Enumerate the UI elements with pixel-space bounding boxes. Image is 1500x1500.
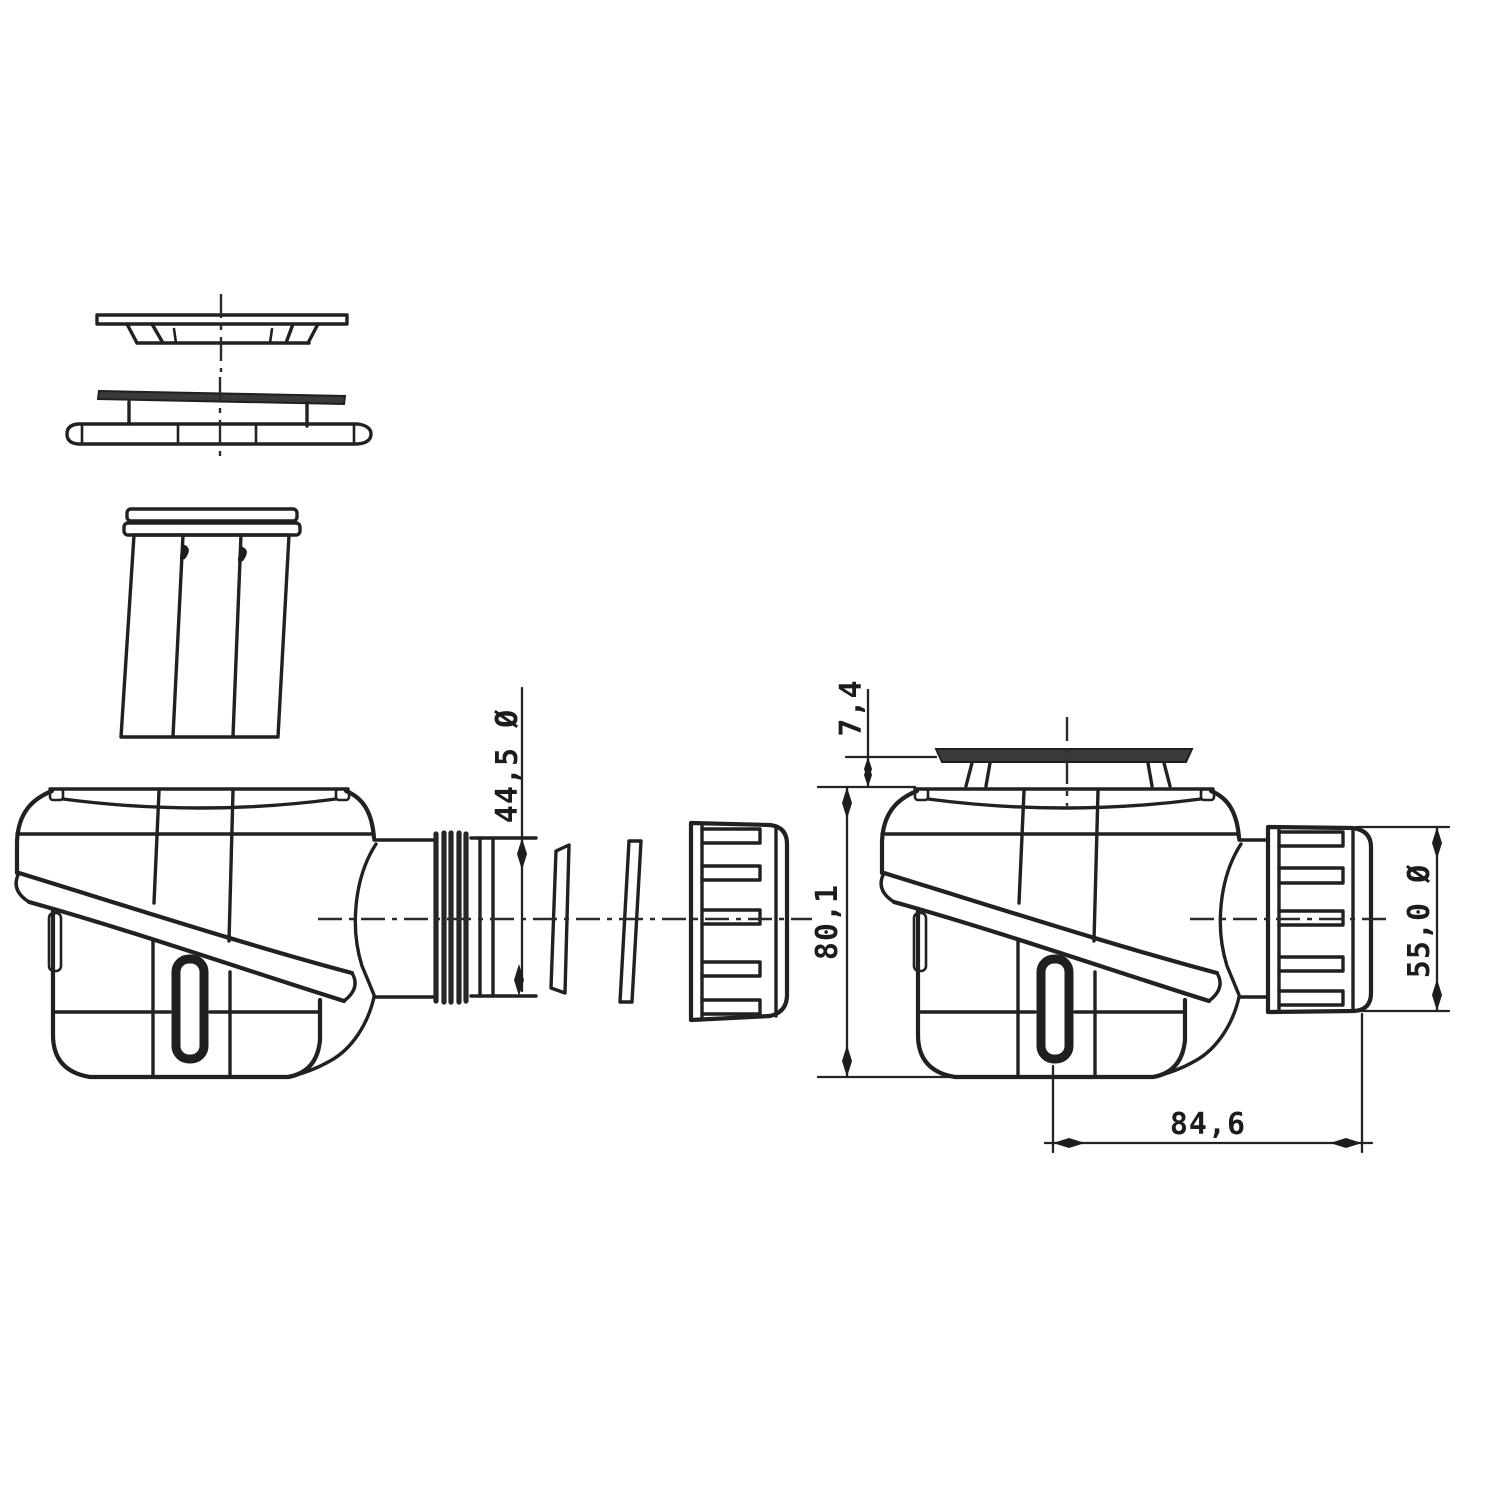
trap-slot-r [1041, 959, 1069, 1059]
shower-trap-technical-drawing: 44,5 Ø [0, 0, 1500, 1500]
tube-upper-rim [127, 509, 297, 521]
dim-label-cover-height: 7,4 [834, 679, 869, 736]
drain-grate-side-view [97, 294, 347, 372]
dim-label-outlet-length: 84,6 [1170, 1107, 1246, 1142]
tube-lower-rim [124, 523, 300, 535]
cover-plate [936, 749, 1192, 762]
pipe-thread-corrugation [436, 833, 466, 1002]
dim-label-nut-od: 55,0 Ø [1402, 864, 1437, 978]
flat-gasket [620, 841, 641, 1002]
trap-cup [53, 910, 320, 1077]
dimension-cover-height: 7,4 [834, 679, 936, 787]
extension-tube [121, 509, 300, 737]
dim-label-body-height: 80,1 [810, 884, 845, 960]
tube-body [121, 535, 289, 737]
nut-castellations [702, 829, 760, 1014]
technical-drawing-page: 44,5 Ø [0, 0, 1500, 1500]
nut-outline [691, 823, 787, 1020]
trap-body-exploded [16, 789, 536, 1077]
dim-label-pipe-od: 44,5 Ø [490, 709, 525, 823]
slip-nut-exploded [691, 823, 787, 1020]
trap-slot [176, 959, 204, 1059]
dimension-pipe-od: 44,5 Ø [490, 688, 527, 996]
trap-body-assembled [881, 789, 1266, 1077]
drain-cover [936, 717, 1192, 806]
sweep-band-lower-r [894, 902, 1209, 1001]
seal-flange-side-view [67, 377, 371, 462]
trap-cup-r [918, 910, 1185, 1077]
sweep-band-lower [29, 902, 344, 1001]
